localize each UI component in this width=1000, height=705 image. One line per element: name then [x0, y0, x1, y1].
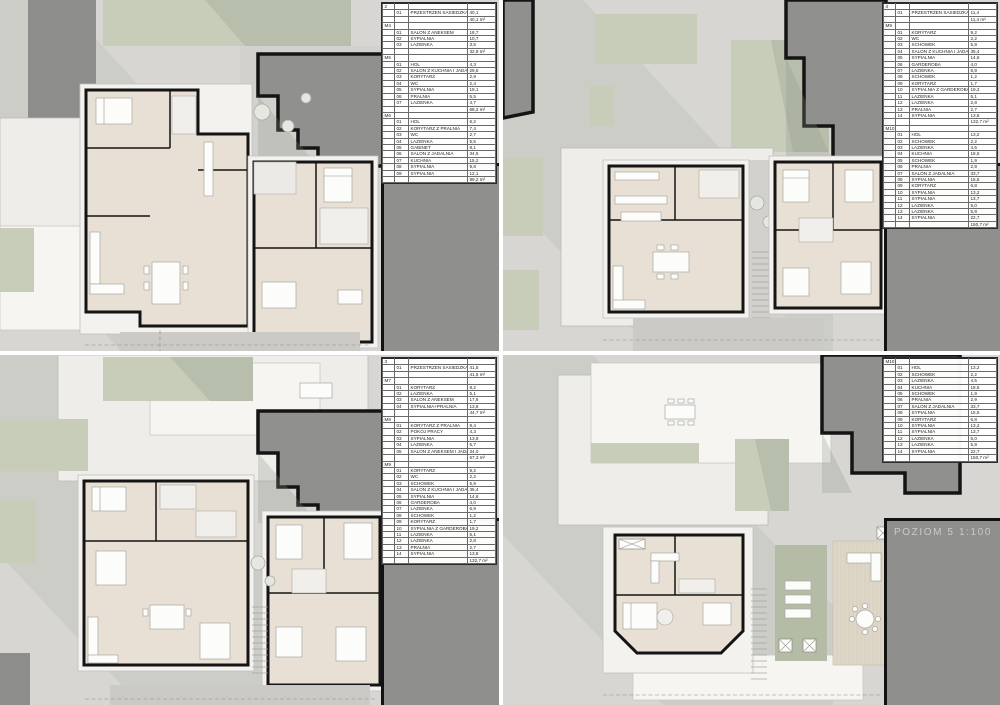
bed-icon — [96, 98, 132, 124]
legend-table: 301PRZESTRZEN SASIEDZKA41,541,5 m²M701KO… — [382, 358, 496, 564]
legend-table: 401PRZESTRZEN SASIEDZKA11,411,4 m²M901KO… — [883, 3, 997, 228]
level-label: POZIOM 5 1:100 — [894, 527, 992, 538]
legend-poziom-3: 301PRZESTRZEN SASIEDZKA41,541,5 m²M701KO… — [381, 357, 497, 565]
bed-icon — [336, 627, 366, 661]
roof-table-icon — [665, 405, 695, 419]
sofa-icon — [88, 617, 98, 661]
floorplan-panel-poziom-5: POZIOM 5 1:100 M1001HOL13,202SCHOWEK2,20… — [503, 355, 1000, 705]
tree-icon — [254, 104, 270, 120]
bed-icon — [92, 487, 126, 511]
legend-total-row: 132,7 m² — [383, 557, 496, 563]
dining-table-icon — [150, 605, 184, 629]
dining-table-icon — [152, 262, 180, 304]
bed-icon — [324, 168, 352, 202]
legend-poziom-5: M1001HOL13,202SCHOWEK2,203LAZIENKA4,504K… — [882, 357, 998, 463]
legend-poziom-4: 401PRZESTRZEN SASIEDZKA11,411,4 m²M901KO… — [882, 2, 998, 229]
bed-icon — [703, 603, 731, 625]
bed-icon — [845, 170, 873, 202]
kitchen-counter-icon — [615, 172, 659, 180]
rug-icon — [657, 609, 673, 625]
bed-icon — [276, 627, 302, 657]
floorplan-panel-poziom-4: POZIOM 4 1:100 401PRZESTRZEN SASIEDZKA11… — [503, 0, 1000, 351]
bed-icon — [783, 170, 809, 202]
sun-lounger-icon — [785, 595, 811, 604]
level-band: POZIOM 5 1:100 — [884, 518, 1000, 705]
legend-poziom-2: 201PRZESTRZEN SASIEDZKA40,140,1 m²M401SA… — [381, 2, 497, 184]
kitchen-counter-icon — [204, 142, 213, 196]
bed-icon — [262, 282, 296, 308]
roof-table-icon — [300, 383, 332, 398]
tree-icon — [301, 93, 311, 103]
sofa-icon — [90, 232, 100, 284]
legend-table: M1001HOL13,202SCHOWEK2,203LAZIENKA4,504K… — [883, 358, 997, 462]
legend-total-row: 150,7 m² — [884, 455, 997, 461]
level-band: POZIOM 2 1:100 — [381, 163, 499, 351]
sun-lounger-icon — [785, 581, 811, 590]
sun-lounger-icon — [785, 609, 811, 618]
bed-icon — [276, 525, 302, 559]
kitchen-island-icon — [621, 212, 661, 221]
outdoor-table-icon — [856, 610, 874, 628]
bed-icon — [96, 551, 126, 585]
bed-icon — [200, 623, 230, 659]
tree-icon — [265, 576, 275, 586]
floorplan-panel-poziom-3: POZIOM 3 1:100 301PRZESTRZEN SASIEDZKA41… — [0, 355, 499, 705]
legend-total-row: 99,2 m² — [383, 176, 496, 182]
floorplan-panel-poziom-2: POZIOM 2 1:100 201PRZESTRZEN SASIEDZKA40… — [0, 0, 499, 351]
tree-icon — [282, 120, 294, 132]
dining-table-icon — [653, 252, 689, 272]
legend-table: 201PRZESTRZEN SASIEDZKA40,140,1 m²M401SA… — [382, 3, 496, 183]
kitchen-counter-icon — [615, 196, 667, 204]
bed-icon — [623, 603, 657, 629]
bed-icon — [344, 523, 372, 559]
sofa-icon — [651, 553, 679, 561]
bed-icon — [783, 268, 809, 296]
tree-icon — [750, 196, 764, 210]
plan-sheet: POZIOM 2 1:100 201PRZESTRZEN SASIEDZKA40… — [0, 0, 1000, 705]
bed-icon — [841, 262, 871, 294]
tree-icon — [251, 556, 265, 570]
legend-total-row: 150,7 m² — [884, 221, 997, 227]
